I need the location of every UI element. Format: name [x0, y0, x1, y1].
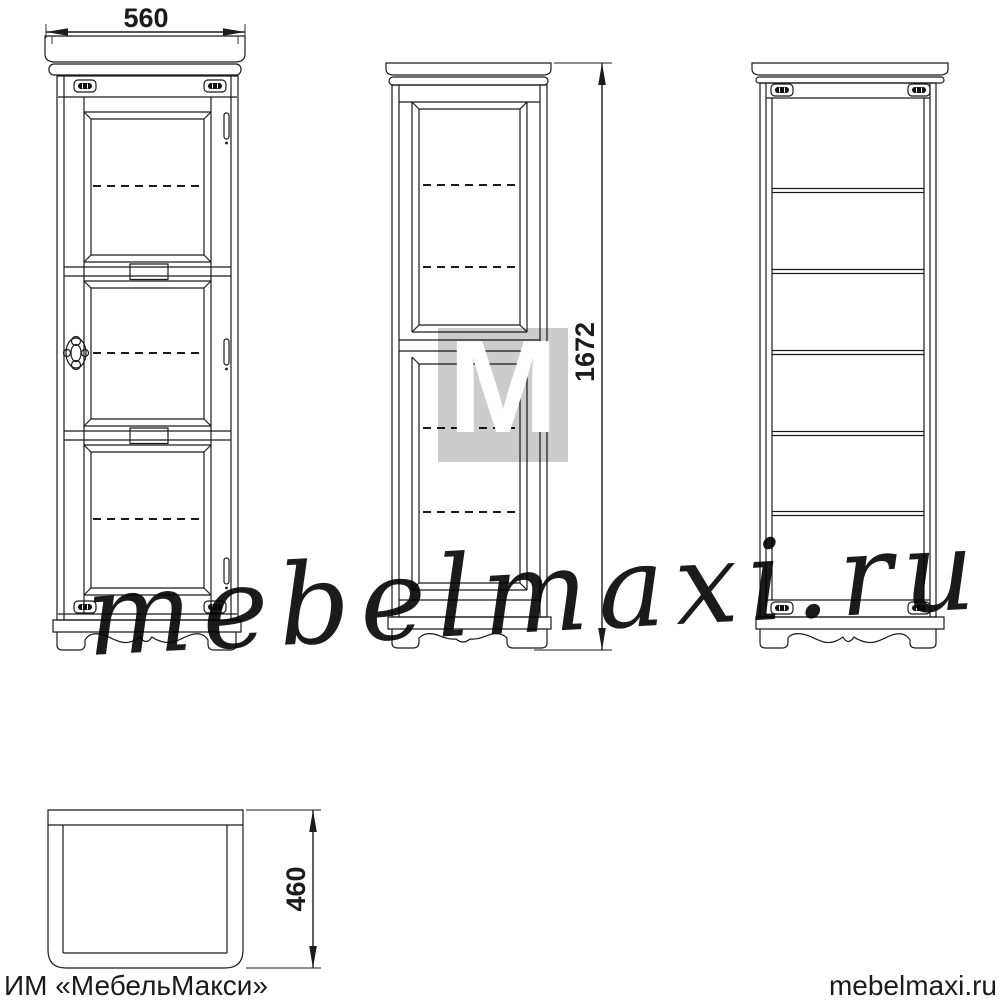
front-glass-panel-2	[84, 281, 211, 426]
front-fluted-rail-2	[64, 428, 231, 444]
ornate-door-handle-icon	[64, 337, 89, 370]
top-view	[48, 810, 243, 968]
watermark-script-text: mebelmaxi.ru	[83, 505, 988, 682]
cam-lock-fastener-icon	[74, 80, 96, 92]
door-hinge-icon	[224, 339, 229, 370]
back-shelf-rails	[772, 189, 924, 516]
top-view-outline	[48, 810, 243, 968]
back-crown-fascia	[752, 63, 948, 75]
front-glass-panel-1	[84, 112, 211, 262]
cam-lock-fastener-icon	[908, 84, 930, 96]
front-crown-fascia	[45, 36, 245, 62]
dimension-depth: 460	[246, 810, 321, 968]
side-crown-fascia	[386, 63, 551, 75]
front-crown-band	[49, 64, 241, 75]
height-dimension-label: 1672	[570, 322, 600, 382]
footer-right-label: mebelmaxi.ru	[829, 970, 997, 1000]
front-fluted-rail-1	[64, 264, 231, 280]
side-crown-band	[389, 77, 548, 85]
door-hinge-icon	[224, 113, 229, 144]
furniture-technical-drawing: 560	[0, 0, 1000, 1000]
footer-left-label: ИМ «МебельМакси»	[4, 970, 268, 1000]
cam-lock-fastener-icon	[204, 80, 226, 92]
width-dimension-label: 560	[123, 3, 168, 33]
cam-lock-fastener-icon	[771, 84, 793, 96]
back-crown-band	[756, 77, 944, 83]
drawing-page: 560	[0, 0, 1000, 1000]
dimension-width: 560	[46, 3, 245, 38]
watermark: mebelmaxi.ru M	[83, 313, 988, 682]
watermark-logo-letter: M	[448, 313, 558, 460]
side-glass-panel-1	[412, 102, 527, 332]
depth-dimension-label: 460	[281, 866, 311, 911]
footer: ИМ «МебельМакси» mebelmaxi.ru	[4, 970, 997, 1000]
